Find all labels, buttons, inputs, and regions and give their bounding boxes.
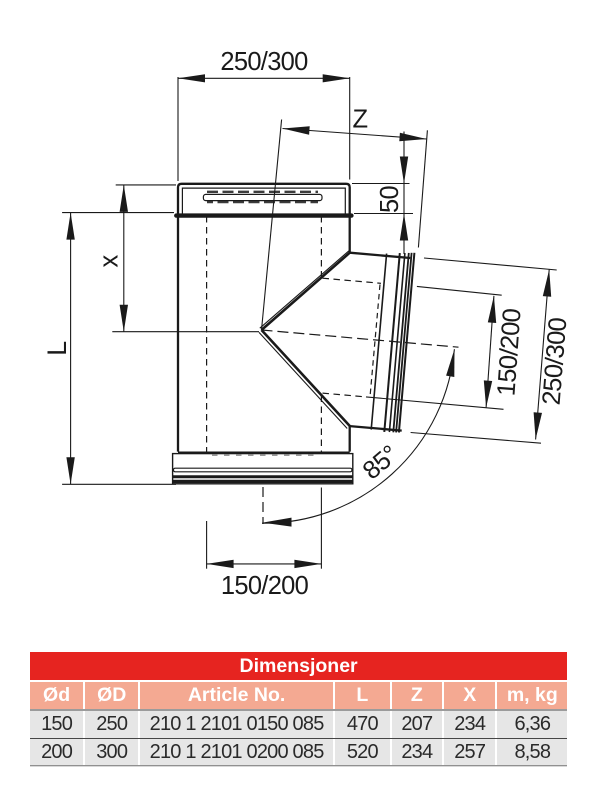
svg-text:150/200: 150/200 [492, 307, 526, 397]
svg-text:50: 50 [376, 186, 404, 213]
svg-text:250/300: 250/300 [538, 316, 573, 406]
svg-text:150/200: 150/200 [221, 572, 309, 600]
svg-text:250/300: 250/300 [220, 48, 308, 76]
svg-text:85°: 85° [358, 440, 404, 485]
svg-text:L: L [42, 341, 72, 356]
svg-text:Z: Z [353, 106, 368, 134]
svg-text:x: x [96, 255, 124, 268]
